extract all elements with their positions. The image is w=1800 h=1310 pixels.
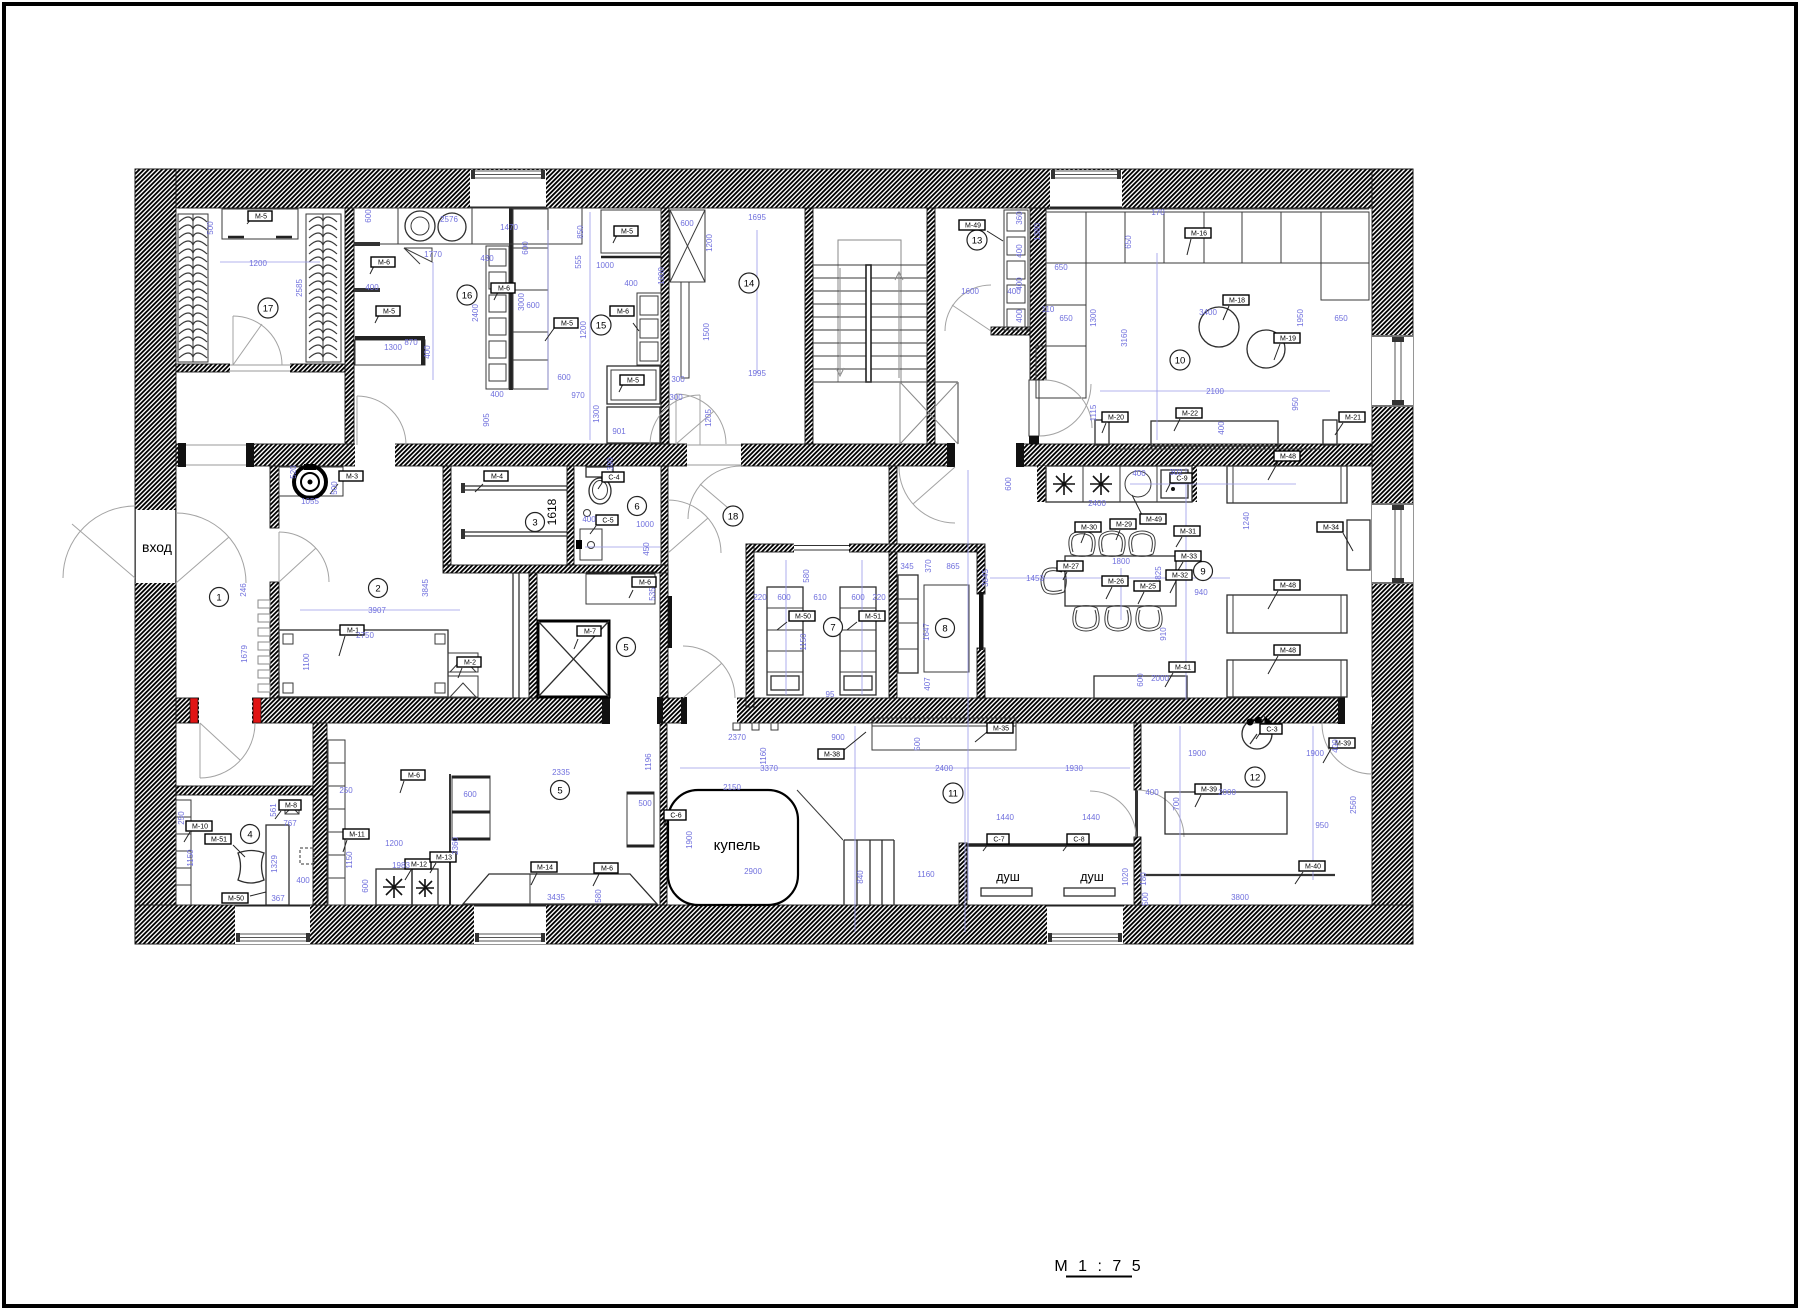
svg-text:400: 400 [490, 390, 504, 399]
svg-text:M-10: M-10 [192, 824, 208, 831]
svg-text:M-2: M-2 [464, 660, 476, 667]
svg-text:3845: 3845 [981, 569, 990, 587]
svg-text:600: 600 [361, 879, 370, 893]
svg-text:12: 12 [1250, 773, 1261, 784]
svg-text:5: 5 [557, 786, 562, 797]
svg-text:1100: 1100 [302, 653, 311, 671]
svg-text:901: 901 [612, 427, 626, 436]
svg-text:600: 600 [1004, 477, 1013, 491]
svg-text:302: 302 [1169, 468, 1183, 477]
svg-text:220: 220 [872, 593, 886, 602]
svg-text:M-14: M-14 [537, 865, 553, 872]
svg-text:M-41: M-41 [1175, 665, 1191, 672]
svg-text:1470: 1470 [500, 223, 518, 232]
svg-text:M-6: M-6 [408, 773, 420, 780]
svg-text:500: 500 [206, 221, 215, 235]
svg-text:M-39: M-39 [1201, 787, 1217, 794]
svg-text:600: 600 [526, 301, 540, 310]
svg-text:M-11: M-11 [349, 832, 365, 839]
svg-text:400: 400 [1331, 739, 1340, 753]
svg-text:561: 561 [269, 803, 278, 817]
svg-text:M-25: M-25 [1140, 584, 1156, 591]
svg-text:1150: 1150 [345, 851, 354, 869]
svg-text:600: 600 [680, 219, 694, 228]
svg-text:400: 400 [1217, 421, 1226, 435]
svg-text:2400: 2400 [1088, 499, 1106, 508]
svg-text:1380: 1380 [1033, 223, 1042, 241]
svg-text:1150: 1150 [186, 849, 195, 867]
svg-text:407: 407 [923, 677, 932, 691]
svg-text:535: 535 [648, 587, 657, 601]
svg-text:390: 390 [606, 457, 615, 471]
svg-text:M-33: M-33 [1181, 554, 1197, 561]
svg-text:300: 300 [669, 393, 683, 402]
svg-text:1240: 1240 [1242, 512, 1251, 530]
svg-text:15: 15 [596, 321, 607, 332]
svg-text:650: 650 [1124, 235, 1133, 249]
svg-text:400: 400 [1132, 469, 1146, 478]
svg-text:M-35: M-35 [993, 726, 1009, 733]
svg-text:1500: 1500 [702, 323, 711, 341]
svg-text:M-6: M-6 [601, 866, 613, 873]
svg-text:1695: 1695 [748, 213, 766, 222]
svg-text:2900: 2900 [744, 867, 762, 876]
svg-text:1055: 1055 [301, 497, 319, 506]
svg-text:1115: 1115 [1089, 404, 1098, 421]
svg-text:C-7: C-7 [993, 837, 1004, 844]
svg-text:M-48: M-48 [1280, 648, 1296, 655]
svg-text:M-7: M-7 [584, 629, 596, 636]
svg-text:1300: 1300 [592, 405, 601, 423]
svg-text:M-5: M-5 [621, 229, 633, 236]
svg-text:170: 170 [1151, 208, 1165, 217]
svg-text:1679: 1679 [240, 645, 249, 663]
svg-text:600: 600 [557, 373, 571, 382]
svg-text:душ: душ [996, 870, 1020, 884]
svg-text:17: 17 [263, 304, 274, 315]
svg-text:2400: 2400 [935, 764, 953, 773]
svg-text:520: 520 [289, 465, 298, 479]
svg-text:8: 8 [942, 624, 947, 635]
svg-text:M-4: M-4 [491, 474, 503, 481]
svg-text:650: 650 [1059, 314, 1073, 323]
svg-text:1983: 1983 [392, 861, 410, 870]
svg-text:400: 400 [582, 515, 596, 524]
svg-text:767: 767 [283, 819, 297, 828]
svg-text:400: 400 [423, 345, 432, 359]
svg-text:купель: купель [714, 837, 761, 854]
svg-text:M-32: M-32 [1172, 573, 1188, 580]
svg-text:500: 500 [1141, 892, 1150, 906]
svg-text:6: 6 [634, 502, 639, 513]
svg-text:865: 865 [946, 562, 960, 571]
svg-text:580: 580 [802, 569, 811, 583]
svg-text:3800: 3800 [1231, 893, 1249, 902]
svg-text:2000: 2000 [1218, 788, 1236, 797]
svg-text:M-50: M-50 [228, 896, 244, 903]
svg-text:367: 367 [271, 894, 285, 903]
svg-text:910: 910 [1159, 627, 1168, 641]
svg-text:1200: 1200 [385, 839, 403, 848]
svg-text:M-30: M-30 [1081, 525, 1097, 532]
svg-text:M-16: M-16 [1191, 231, 1207, 238]
svg-text:M-6: M-6 [617, 309, 629, 316]
svg-text:900: 900 [831, 733, 845, 742]
svg-text:1000: 1000 [636, 520, 654, 529]
svg-text:14: 14 [744, 279, 755, 290]
svg-text:1000: 1000 [657, 267, 666, 285]
svg-text:1995: 1995 [748, 369, 766, 378]
svg-text:400: 400 [365, 283, 379, 292]
svg-text:1800: 1800 [1112, 557, 1130, 566]
svg-text:600: 600 [463, 790, 477, 799]
svg-text:370: 370 [924, 559, 933, 573]
svg-text:1020: 1020 [1121, 868, 1130, 886]
svg-text:M-50: M-50 [795, 614, 811, 621]
svg-text:2360: 2360 [451, 837, 460, 855]
svg-text:940: 940 [1194, 588, 1208, 597]
svg-text:600: 600 [1136, 673, 1145, 687]
svg-text:840: 840 [856, 870, 865, 884]
svg-text:250: 250 [339, 786, 353, 795]
svg-text:700: 700 [1172, 797, 1181, 811]
svg-text:400: 400 [1015, 244, 1024, 258]
svg-text:M-29: M-29 [1116, 522, 1132, 529]
svg-text:M-40: M-40 [1305, 864, 1321, 871]
svg-text:500: 500 [638, 799, 652, 808]
svg-text:M-22: M-22 [1182, 411, 1198, 418]
svg-text:110: 110 [1042, 305, 1055, 314]
svg-text:C-3: C-3 [1266, 727, 1277, 734]
svg-text:M-34: M-34 [1323, 525, 1339, 532]
svg-text:1950: 1950 [1296, 309, 1305, 327]
svg-text:M-18: M-18 [1229, 298, 1245, 305]
svg-text:2560: 2560 [1349, 796, 1358, 814]
svg-text:M-27: M-27 [1063, 564, 1079, 571]
svg-text:905: 905 [482, 413, 491, 427]
svg-text:600: 600 [521, 241, 530, 255]
svg-text:C-4: C-4 [608, 475, 619, 482]
svg-text:7: 7 [830, 623, 835, 634]
svg-text:M-31: M-31 [1180, 529, 1196, 536]
svg-text:11: 11 [948, 789, 958, 800]
svg-text:18: 18 [728, 512, 739, 523]
svg-text:C-5: C-5 [602, 518, 613, 525]
svg-text:1329: 1329 [270, 855, 279, 873]
svg-text:M-26: M-26 [1108, 579, 1124, 586]
svg-text:600: 600 [364, 209, 373, 223]
svg-text:600: 600 [851, 593, 865, 602]
svg-text:1150: 1150 [799, 633, 808, 651]
svg-text:1440: 1440 [996, 813, 1014, 822]
svg-text:345: 345 [900, 562, 914, 571]
svg-text:1205: 1205 [704, 409, 713, 427]
svg-text:1600: 1600 [961, 287, 979, 296]
svg-text:2150: 2150 [723, 783, 741, 792]
svg-text:3400: 3400 [1199, 308, 1217, 317]
svg-text:400: 400 [1145, 788, 1159, 797]
svg-text:1160: 1160 [917, 870, 935, 879]
svg-text:M-48: M-48 [1280, 454, 1296, 461]
svg-text:1200: 1200 [705, 234, 714, 252]
svg-text:M-5: M-5 [255, 214, 267, 221]
svg-text:1200: 1200 [579, 321, 588, 339]
svg-text:C-8: C-8 [1073, 837, 1084, 844]
svg-text:M-12: M-12 [411, 862, 427, 869]
svg-text:400: 400 [1007, 287, 1021, 296]
svg-text:2585: 2585 [295, 279, 304, 297]
svg-text:95: 95 [826, 690, 835, 699]
svg-text:3160: 3160 [1120, 329, 1129, 347]
svg-text:3000: 3000 [517, 293, 526, 311]
svg-text:4: 4 [247, 830, 252, 841]
svg-text:300: 300 [671, 375, 685, 384]
svg-text:M-3: M-3 [346, 474, 358, 481]
svg-text:180: 180 [1139, 872, 1148, 886]
svg-text:450: 450 [642, 542, 651, 556]
svg-text:250: 250 [177, 811, 186, 825]
svg-text:1160: 1160 [759, 747, 768, 765]
svg-text:вход: вход [142, 539, 172, 555]
svg-text:1300: 1300 [1089, 309, 1098, 327]
svg-text:950: 950 [1315, 821, 1329, 830]
svg-text:душ: душ [1080, 870, 1104, 884]
svg-text:3370: 3370 [760, 764, 778, 773]
svg-text:M-49: M-49 [965, 223, 981, 230]
svg-text:M-13: M-13 [436, 855, 452, 862]
svg-text:M-38: M-38 [824, 752, 840, 759]
svg-text:3435: 3435 [547, 893, 565, 902]
svg-text:1900: 1900 [1188, 749, 1206, 758]
svg-text:1618: 1618 [545, 498, 559, 525]
svg-text:1930: 1930 [1065, 764, 1083, 773]
svg-text:3845: 3845 [421, 579, 430, 597]
svg-text:5: 5 [623, 643, 628, 654]
svg-text:1200: 1200 [249, 259, 267, 268]
svg-text:220: 220 [753, 593, 767, 602]
svg-text:1300: 1300 [384, 343, 402, 352]
svg-text:650: 650 [1334, 314, 1348, 323]
svg-text:1900: 1900 [1306, 749, 1324, 758]
svg-text:C-6: C-6 [670, 813, 681, 820]
svg-text:9: 9 [1200, 567, 1205, 578]
svg-text:950: 950 [1291, 397, 1300, 411]
svg-text:970: 970 [571, 391, 585, 400]
svg-text:600: 600 [777, 593, 791, 602]
svg-text:M-5: M-5 [627, 378, 639, 385]
svg-text:246: 246 [239, 583, 248, 597]
svg-text:M-5: M-5 [383, 309, 395, 316]
svg-text:430: 430 [480, 254, 494, 263]
svg-text:2000: 2000 [1151, 674, 1169, 683]
svg-text:360: 360 [1015, 211, 1024, 225]
svg-text:1770: 1770 [424, 250, 442, 259]
svg-text:1: 1 [216, 593, 221, 604]
svg-text:2335: 2335 [552, 768, 570, 777]
svg-text:16: 16 [462, 291, 473, 302]
svg-text:2750: 2750 [356, 631, 374, 640]
svg-text:400: 400 [624, 279, 638, 288]
svg-text:2: 2 [375, 584, 380, 595]
svg-text:1647: 1647 [922, 623, 931, 641]
svg-text:M-21: M-21 [1345, 415, 1361, 422]
svg-text:1196: 1196 [644, 753, 653, 771]
svg-text:M-19: M-19 [1280, 336, 1296, 343]
svg-text:M-49: M-49 [1146, 517, 1162, 524]
svg-text:1000: 1000 [596, 261, 614, 270]
svg-text:M-8: M-8 [285, 803, 297, 810]
svg-text:M-48: M-48 [1280, 583, 1296, 590]
svg-text:3: 3 [532, 518, 537, 529]
svg-text:870: 870 [404, 338, 418, 347]
svg-text:M-5: M-5 [561, 321, 573, 328]
svg-text:M-51: M-51 [211, 837, 227, 844]
svg-text:2576: 2576 [440, 215, 458, 224]
svg-text:580: 580 [594, 889, 603, 903]
svg-text:M-6: M-6 [498, 286, 510, 293]
svg-text:650: 650 [1054, 263, 1068, 272]
svg-text:M-6: M-6 [378, 260, 390, 267]
svg-text:1900: 1900 [685, 831, 694, 849]
svg-text:1440: 1440 [1082, 813, 1100, 822]
svg-text:M-20: M-20 [1108, 415, 1124, 422]
svg-text:13: 13 [972, 236, 983, 247]
svg-text:1453: 1453 [1026, 574, 1044, 583]
svg-text:2100: 2100 [1206, 387, 1224, 396]
svg-text:400: 400 [296, 876, 310, 885]
svg-text:500: 500 [913, 737, 922, 751]
svg-text:500: 500 [330, 481, 339, 495]
svg-text:825: 825 [1154, 566, 1163, 580]
svg-text:3907: 3907 [368, 606, 386, 615]
svg-text:10: 10 [1175, 356, 1186, 367]
svg-text:850: 850 [576, 225, 585, 239]
svg-text:610: 610 [813, 593, 827, 602]
svg-text:2370: 2370 [728, 733, 746, 742]
svg-text:2400: 2400 [471, 304, 480, 322]
svg-text:555: 555 [574, 255, 583, 269]
svg-text:M 1 : 7 5: M 1 : 7 5 [1054, 1258, 1143, 1275]
svg-text:M-51: M-51 [865, 614, 881, 621]
svg-text:M-6: M-6 [639, 580, 651, 587]
svg-text:400: 400 [1015, 309, 1024, 323]
